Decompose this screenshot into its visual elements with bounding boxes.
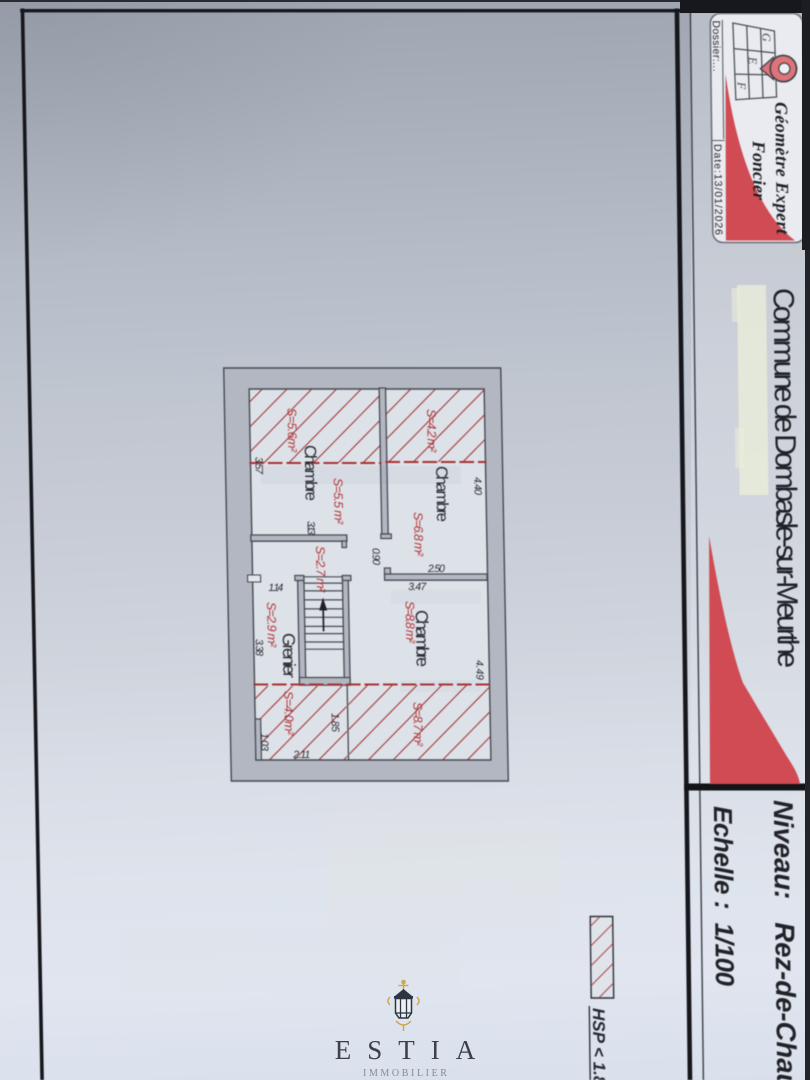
svg-text:1.03: 1.03 — [258, 733, 270, 751]
svg-text:2.50: 2.50 — [427, 563, 445, 575]
svg-text:Grenier: Grenier — [279, 633, 300, 678]
svg-text:S=8.8 m²: S=8.8 m² — [403, 601, 418, 644]
svg-text:3.47: 3.47 — [408, 581, 427, 593]
svg-text:Chambre: Chambre — [432, 466, 451, 522]
svg-text:3.38: 3.38 — [253, 639, 265, 656]
svg-text:S=4.0m²: S=4.0m² — [281, 691, 296, 736]
svg-text:E: E — [746, 56, 760, 65]
svg-text:Echelle : 1/100: Echelle : 1/100 — [708, 806, 740, 987]
svg-text:S=4.2 m²: S=4.2 m² — [424, 409, 439, 453]
svg-text:S=6.8 m²: S=6.8 m² — [411, 512, 426, 557]
svg-text:2.11: 2.11 — [292, 749, 310, 761]
svg-text:S=8.7 m²: S=8.7 m² — [410, 702, 425, 747]
svg-text:S=2.7 m²: S=2.7 m² — [313, 546, 328, 593]
svg-text:S=5.5 m²: S=5.5 m² — [331, 478, 346, 525]
svg-text:Chambre: Chambre — [301, 445, 320, 501]
svg-text:S=5.6m²: S=5.6m² — [284, 408, 299, 453]
svg-text:Date:13/01/2026: Date:13/01/2026 — [711, 144, 724, 235]
svg-text:G: G — [759, 33, 773, 42]
svg-text:3.13: 3.13 — [305, 521, 317, 535]
svg-text:4.49: 4.49 — [473, 660, 485, 680]
svg-text:F: F — [734, 81, 748, 90]
svg-text:4.40: 4.40 — [471, 477, 483, 495]
svg-text:S=2.9 m²: S=2.9 m² — [264, 602, 279, 648]
svg-text:1.14: 1.14 — [268, 582, 283, 594]
svg-text:Foncier: Foncier — [749, 140, 770, 201]
svg-text:3.57: 3.57 — [252, 457, 264, 475]
svg-text:0.90: 0.90 — [370, 548, 382, 565]
svg-text:1.85: 1.85 — [329, 713, 341, 732]
svg-text:Géomètre Expert: Géomètre Expert — [771, 102, 793, 235]
svg-text:Commune de Dombasle-sur-Meurth: Commune de Dombasle-sur-Meurthe — [767, 288, 805, 668]
svg-text:Dossier:...: Dossier:... — [710, 21, 723, 72]
